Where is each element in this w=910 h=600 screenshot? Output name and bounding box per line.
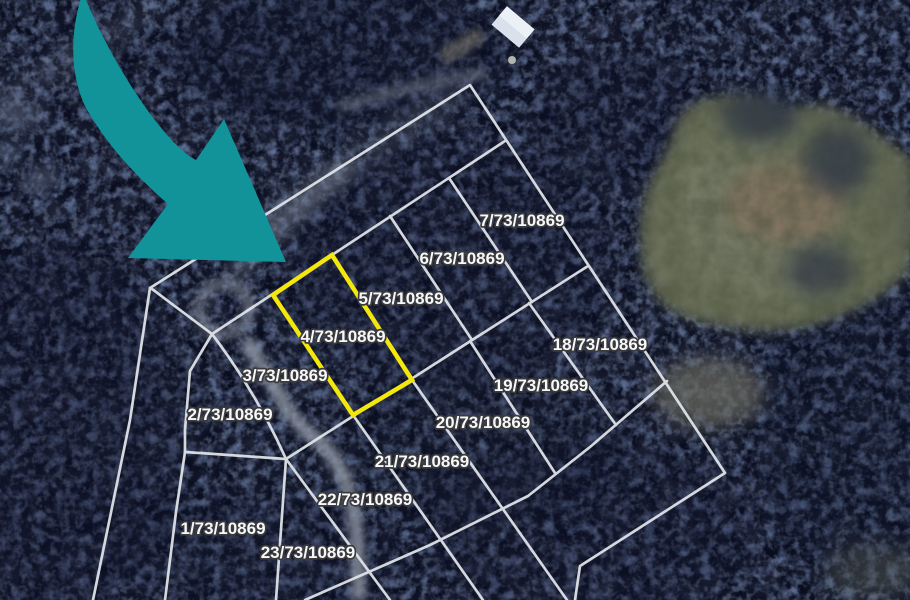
svg-text:22/73/10869: 22/73/10869 <box>318 490 413 509</box>
svg-text:1/73/10869: 1/73/10869 <box>180 519 265 538</box>
svg-text:18/73/10869: 18/73/10869 <box>553 335 648 354</box>
svg-text:3/73/10869: 3/73/10869 <box>242 366 327 385</box>
svg-text:19/73/10869: 19/73/10869 <box>494 376 589 395</box>
svg-text:6/73/10869: 6/73/10869 <box>419 249 504 268</box>
svg-text:7/73/10869: 7/73/10869 <box>479 211 564 230</box>
svg-text:21/73/10869: 21/73/10869 <box>375 452 470 471</box>
svg-text:20/73/10869: 20/73/10869 <box>436 413 531 432</box>
svg-text:5/73/10869: 5/73/10869 <box>358 289 443 308</box>
svg-text:2/73/10869: 2/73/10869 <box>187 405 272 424</box>
svg-text:4/73/10869: 4/73/10869 <box>300 327 385 346</box>
svg-text:23/73/10869: 23/73/10869 <box>261 543 356 562</box>
